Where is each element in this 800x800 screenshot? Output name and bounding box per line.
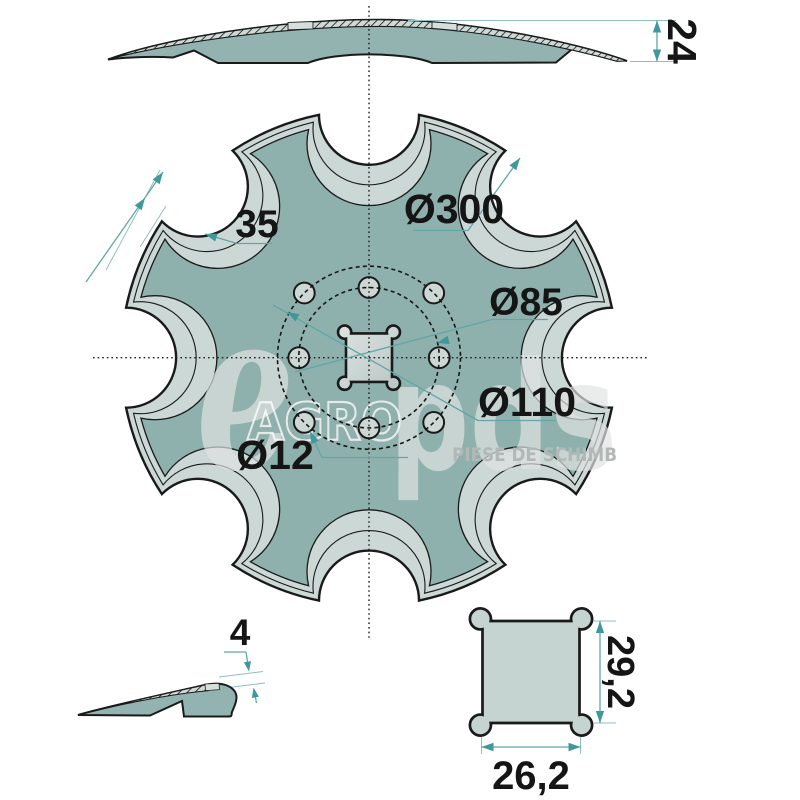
dim-label-square-height: 29,2 [599, 635, 641, 709]
technical-drawing-page: e AGRO pds e AGRO pds PIESE DE SCHIMB 24… [0, 0, 800, 800]
watermark-e: e [196, 261, 295, 522]
dim-label-square-width: 26,2 [492, 754, 570, 798]
dimension-arrow [135, 198, 145, 210]
edge-detail-band-gap [205, 683, 220, 690]
disc-profile-view [108, 20, 627, 63]
watermark-tagline: PIESE DE SCHIMB [452, 444, 617, 466]
square-hole-detail-shape [470, 608, 592, 735]
drawing-canvas: e AGRO pds e AGRO pds PIESE DE SCHIMB 24… [0, 0, 800, 800]
profile-band-gap [288, 22, 313, 30]
edge-section-detail [78, 683, 237, 716]
dimension-arrow [252, 688, 259, 699]
dim-label-notch-depth: 35 [235, 203, 278, 246]
dimension-arrow [482, 743, 494, 751]
dimension-arrow [596, 711, 604, 723]
dimension-arrow [569, 743, 581, 751]
dimension-line [219, 672, 263, 678]
dimension-arrow [510, 158, 521, 170]
dimension-arrow [596, 621, 604, 633]
dim-label-inner-bolt-circle: Ø85 [489, 281, 563, 324]
dim-label-outer-diameter: Ø300 [404, 186, 504, 232]
dim-label-bolt-hole: Ø12 [236, 432, 314, 478]
square-hole-detail [470, 608, 592, 735]
dim-label-stack-height: 24 [659, 18, 705, 64]
dim-label-outer-bolt-circle: Ø110 [478, 379, 576, 425]
dimension-arrow [244, 661, 251, 671]
dim-label-blade-thickness: 4 [230, 612, 251, 653]
